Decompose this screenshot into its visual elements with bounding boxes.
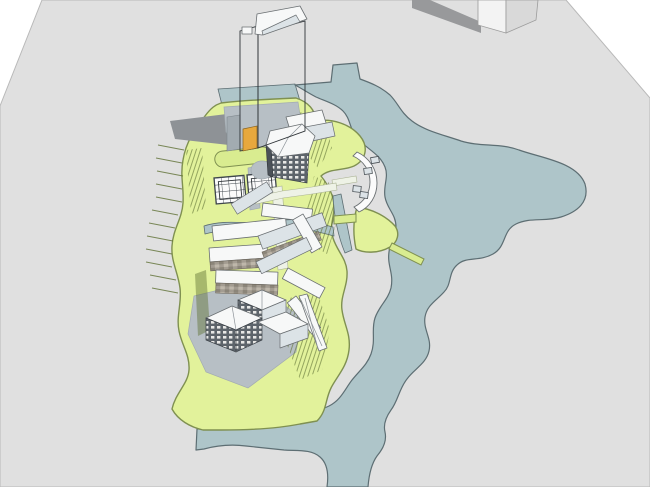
pier-pavilion [353,186,362,193]
pier-pavilion [364,167,373,174]
tower-cap [242,27,252,34]
3d-viewport[interactable] [0,0,650,487]
render-stage [0,0,650,487]
tower-annex [227,115,240,151]
tower-entrance-orange [243,126,257,151]
building-bar [216,270,278,285]
footbridge-west [334,214,356,224]
pier-pavilion [360,191,369,198]
pier-pavilion [371,156,380,163]
